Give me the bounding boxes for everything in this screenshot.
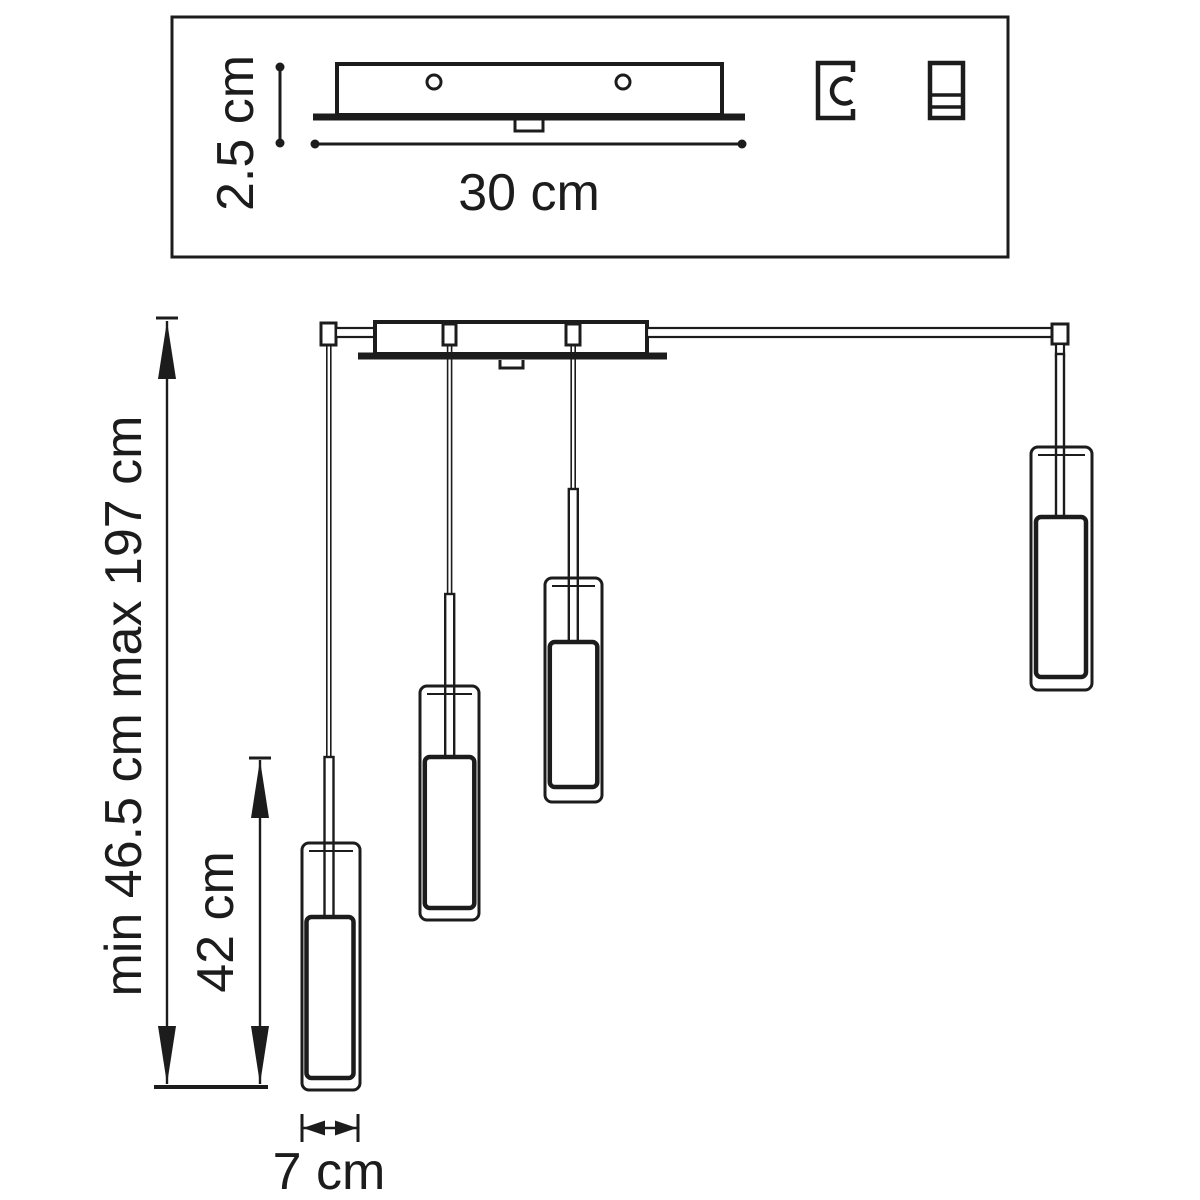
pendant-light-dimension-drawing: [0, 0, 1200, 1200]
cable-mount: [443, 324, 456, 345]
dimension-end-dot: [276, 139, 285, 148]
cable-clamp-icon: [818, 63, 853, 118]
overall-height-label: min 46.5 cm max 197 cm: [98, 416, 150, 997]
pendant-1: [302, 345, 360, 1090]
dimension-end-dot: [311, 140, 320, 149]
dimension-end-dot: [738, 140, 747, 149]
arrow-left: [303, 1121, 325, 1136]
pendant-2: [420, 346, 479, 920]
ceiling-plate-side-view: [313, 64, 745, 131]
right-cable-block: [1052, 324, 1068, 344]
arrow-up: [251, 760, 269, 818]
clamp-bracket: [818, 63, 853, 118]
lamp-shade: [1036, 517, 1086, 677]
dimension-end-dot: [276, 63, 285, 72]
pendant-height-label: 42 cm: [190, 851, 242, 993]
left-rod: [336, 328, 375, 337]
arrow-right: [335, 1121, 357, 1136]
canopy-notch: [500, 360, 523, 368]
left-cable-block: [321, 323, 336, 345]
plate-height-label: 2.5 cm: [210, 55, 262, 211]
lamp-shade: [550, 642, 598, 787]
plate-width-dimension: [311, 140, 747, 149]
pendant-4: [1031, 354, 1092, 690]
suspension-assembly: [321, 322, 1068, 368]
mounting-hole: [427, 75, 441, 89]
mounting-hole: [616, 75, 630, 89]
pendant-3: [545, 346, 602, 802]
lamp-shade: [307, 917, 354, 1078]
dimension-drawing-page: 2.5 cm 30 cm min 46.5 cm max 197 cm 42 c…: [0, 0, 1200, 1200]
right-rod: [647, 328, 1053, 337]
shade-width-label: 7 cm: [273, 1146, 386, 1198]
arrow-up: [158, 321, 176, 379]
lamp-shade: [425, 757, 475, 908]
stem: [569, 489, 578, 643]
plate-width-label: 30 cm: [458, 167, 600, 219]
plate-height-dimension: [276, 63, 285, 148]
plate-body: [337, 64, 722, 115]
pendant-height-dimension: [249, 758, 271, 1084]
clamp-ring: [832, 79, 852, 104]
shade-width-dimension: [302, 1114, 358, 1142]
cable-mount: [566, 324, 580, 345]
canopy: [375, 322, 647, 354]
plate-notch: [515, 120, 543, 131]
stem: [1056, 354, 1064, 518]
stem: [445, 594, 454, 758]
stem: [325, 757, 334, 918]
arrow-down: [158, 1026, 176, 1084]
terminal-block-icon: [930, 63, 963, 118]
arrow-down: [251, 1026, 269, 1084]
terminal-body: [930, 63, 963, 118]
